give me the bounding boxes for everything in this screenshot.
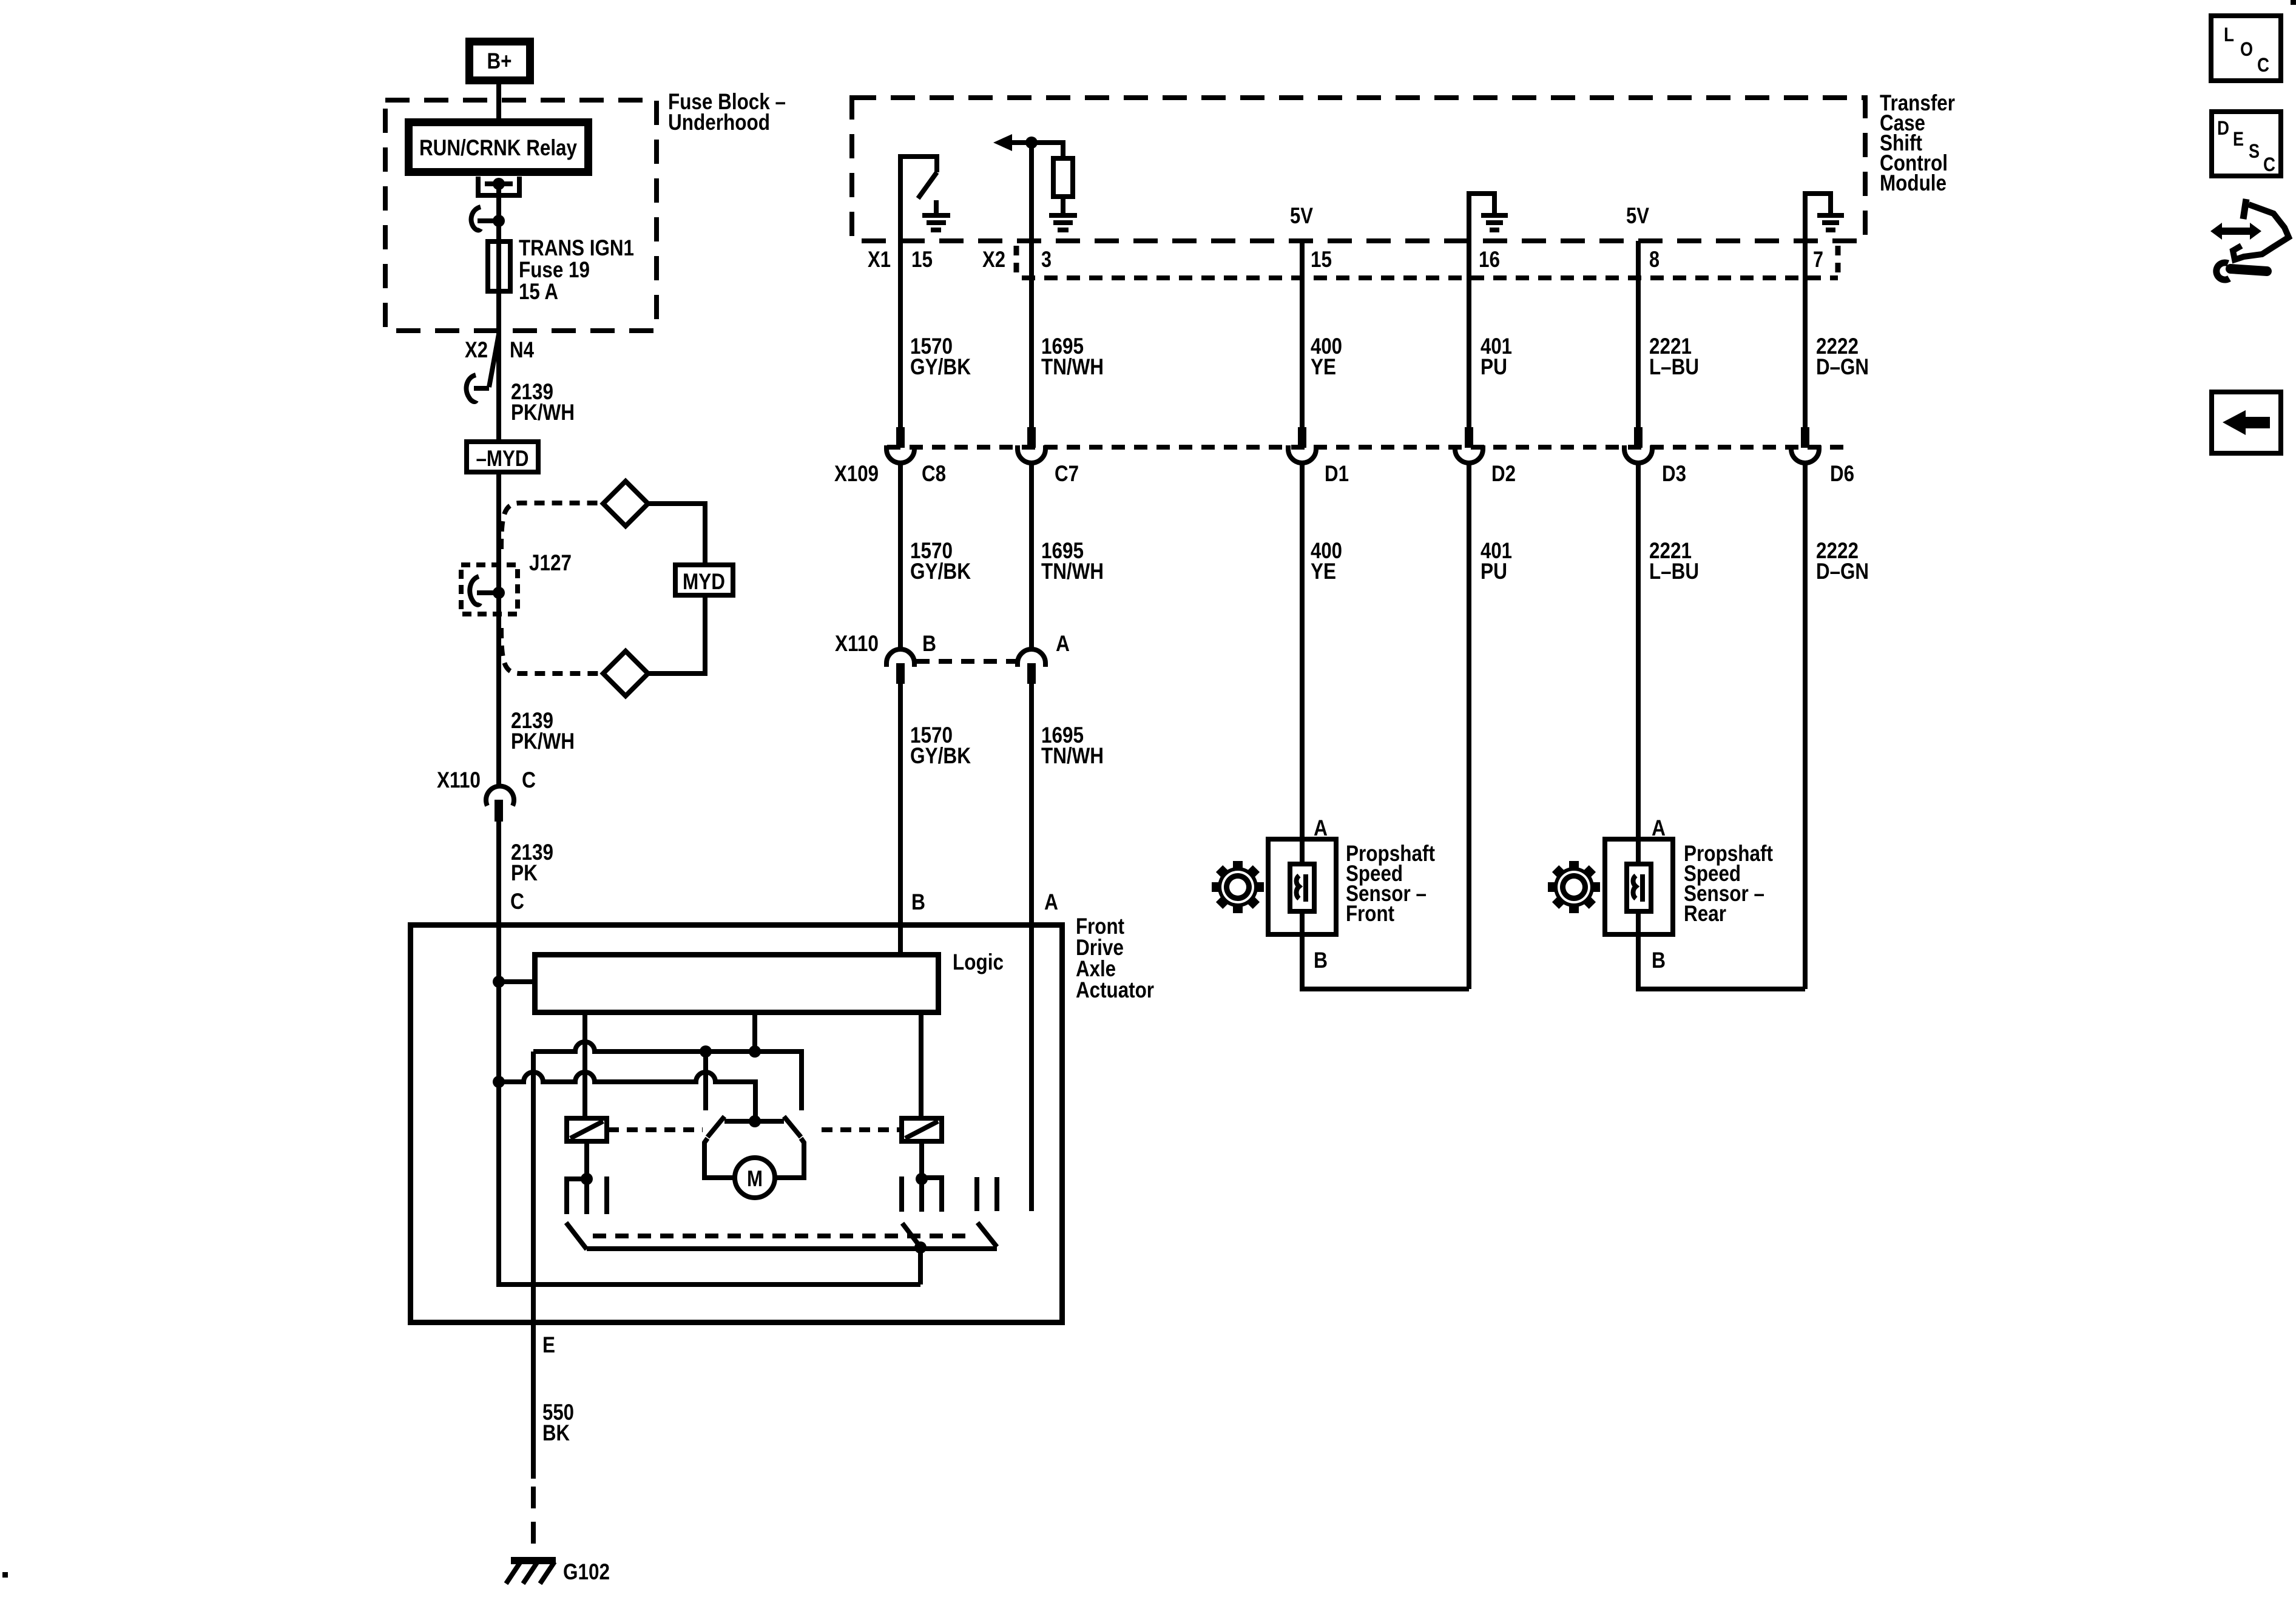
- svg-text:Front: Front: [1346, 901, 1394, 926]
- svg-text:E: E: [542, 1332, 555, 1357]
- svg-text:TN/WH: TN/WH: [1041, 354, 1104, 379]
- svg-text:TN/WH: TN/WH: [1041, 559, 1104, 584]
- svg-text:G102: G102: [563, 1559, 610, 1584]
- svg-text:D3: D3: [1662, 461, 1686, 486]
- svg-text:X2: X2: [982, 247, 1005, 272]
- svg-text:Actuator: Actuator: [1076, 977, 1154, 1002]
- svg-text:C: C: [2257, 54, 2269, 76]
- svg-text:A: A: [1652, 815, 1666, 840]
- svg-text:X109: X109: [834, 461, 879, 486]
- svg-text:PK: PK: [511, 860, 538, 885]
- svg-text:D6: D6: [1830, 461, 1854, 486]
- svg-text:N4: N4: [510, 337, 534, 362]
- svg-text:B: B: [922, 631, 936, 656]
- svg-text:PU: PU: [1481, 559, 1507, 584]
- svg-text:Module: Module: [1880, 170, 1947, 195]
- svg-text:C: C: [510, 889, 524, 914]
- svg-text:E: E: [2233, 128, 2244, 150]
- svg-text:L–BU: L–BU: [1649, 354, 1699, 379]
- svg-text:D: D: [2217, 117, 2229, 139]
- svg-text:16: 16: [1479, 247, 1500, 272]
- svg-text:BK: BK: [542, 1420, 570, 1445]
- svg-text:PK/WH: PK/WH: [511, 729, 575, 754]
- svg-text:YE: YE: [1311, 559, 1336, 584]
- svg-text:GY/BK: GY/BK: [910, 559, 971, 584]
- svg-text:D–GN: D–GN: [1816, 559, 1869, 584]
- svg-text:PU: PU: [1481, 354, 1507, 379]
- svg-text:M: M: [747, 1166, 763, 1191]
- svg-text:L: L: [2224, 24, 2234, 46]
- svg-text:C8: C8: [922, 461, 946, 486]
- svg-text:5V: 5V: [1290, 203, 1313, 228]
- svg-text:YE: YE: [1311, 354, 1336, 379]
- svg-text:S: S: [2249, 140, 2260, 162]
- svg-text:D1: D1: [1325, 461, 1349, 486]
- svg-text:B: B: [1314, 948, 1328, 973]
- svg-text:3: 3: [1041, 247, 1052, 272]
- svg-text:15: 15: [1311, 247, 1332, 272]
- svg-text:MYD: MYD: [683, 569, 725, 594]
- svg-text:TN/WH: TN/WH: [1041, 743, 1104, 768]
- svg-text:L–BU: L–BU: [1649, 559, 1699, 584]
- svg-text:B+: B+: [487, 49, 512, 73]
- svg-text:A: A: [1056, 631, 1070, 656]
- svg-text:D2: D2: [1491, 461, 1516, 486]
- svg-text:B: B: [911, 890, 925, 914]
- svg-text:C: C: [522, 768, 536, 792]
- svg-text:15 A: 15 A: [519, 279, 558, 304]
- svg-text:X110: X110: [437, 768, 481, 792]
- svg-text:A: A: [1314, 815, 1328, 840]
- svg-text:8: 8: [1649, 247, 1660, 272]
- svg-text:GY/BK: GY/BK: [910, 354, 971, 379]
- svg-text:C: C: [2263, 154, 2275, 175]
- svg-text:5V: 5V: [1626, 203, 1649, 228]
- svg-text:B: B: [1652, 948, 1666, 973]
- svg-text:–MYD: –MYD: [476, 446, 529, 471]
- svg-text:J127: J127: [529, 550, 572, 575]
- svg-text:A: A: [1044, 890, 1058, 914]
- svg-text:GY/BK: GY/BK: [910, 743, 971, 768]
- svg-text:X110: X110: [835, 631, 879, 656]
- svg-text:Fuse 19: Fuse 19: [519, 257, 590, 282]
- svg-text:7: 7: [1813, 247, 1823, 272]
- svg-text:C7: C7: [1055, 461, 1079, 486]
- svg-text:X2: X2: [465, 337, 488, 362]
- svg-text:X1: X1: [868, 247, 891, 272]
- svg-text:RUN/CRNK Relay: RUN/CRNK Relay: [419, 135, 577, 160]
- svg-text:Underhood: Underhood: [668, 110, 770, 135]
- svg-text:D–GN: D–GN: [1816, 354, 1869, 379]
- svg-text:PK/WH: PK/WH: [511, 400, 575, 425]
- svg-text:15: 15: [911, 247, 933, 272]
- svg-text:TRANS IGN1: TRANS IGN1: [519, 235, 634, 260]
- svg-text:Rear: Rear: [1684, 901, 1726, 926]
- svg-text:Logic: Logic: [953, 950, 1004, 974]
- svg-text:O: O: [2240, 38, 2253, 60]
